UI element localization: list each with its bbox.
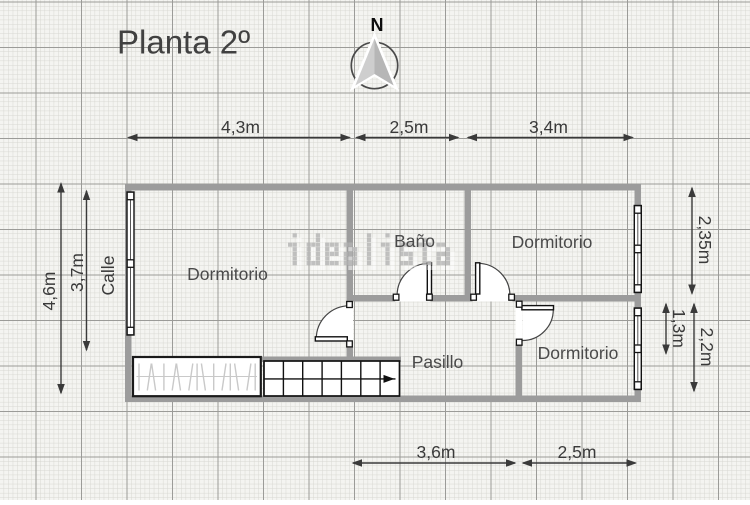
- svg-text:1,3m: 1,3m: [669, 309, 689, 348]
- svg-text:Planta 2º: Planta 2º: [117, 24, 250, 61]
- svg-text:4,6m: 4,6m: [39, 272, 59, 311]
- svg-text:3,7m: 3,7m: [67, 253, 87, 292]
- svg-text:Dormitorio: Dormitorio: [512, 232, 593, 252]
- svg-text:Dormitorio: Dormitorio: [187, 264, 268, 284]
- svg-text:Pasillo: Pasillo: [412, 352, 464, 372]
- svg-text:Baño: Baño: [394, 231, 435, 251]
- svg-text:2,5m: 2,5m: [558, 442, 597, 462]
- svg-text:Calle: Calle: [98, 256, 118, 296]
- svg-text:N: N: [371, 15, 384, 35]
- svg-text:Dormitorio: Dormitorio: [538, 343, 619, 363]
- svg-text:2,5m: 2,5m: [390, 117, 429, 137]
- svg-text:4,3m: 4,3m: [221, 117, 260, 137]
- svg-text:3,6m: 3,6m: [417, 442, 456, 462]
- svg-text:3,4m: 3,4m: [529, 117, 568, 137]
- svg-text:2,2m: 2,2m: [697, 328, 717, 367]
- svg-text:2,35m: 2,35m: [695, 216, 715, 265]
